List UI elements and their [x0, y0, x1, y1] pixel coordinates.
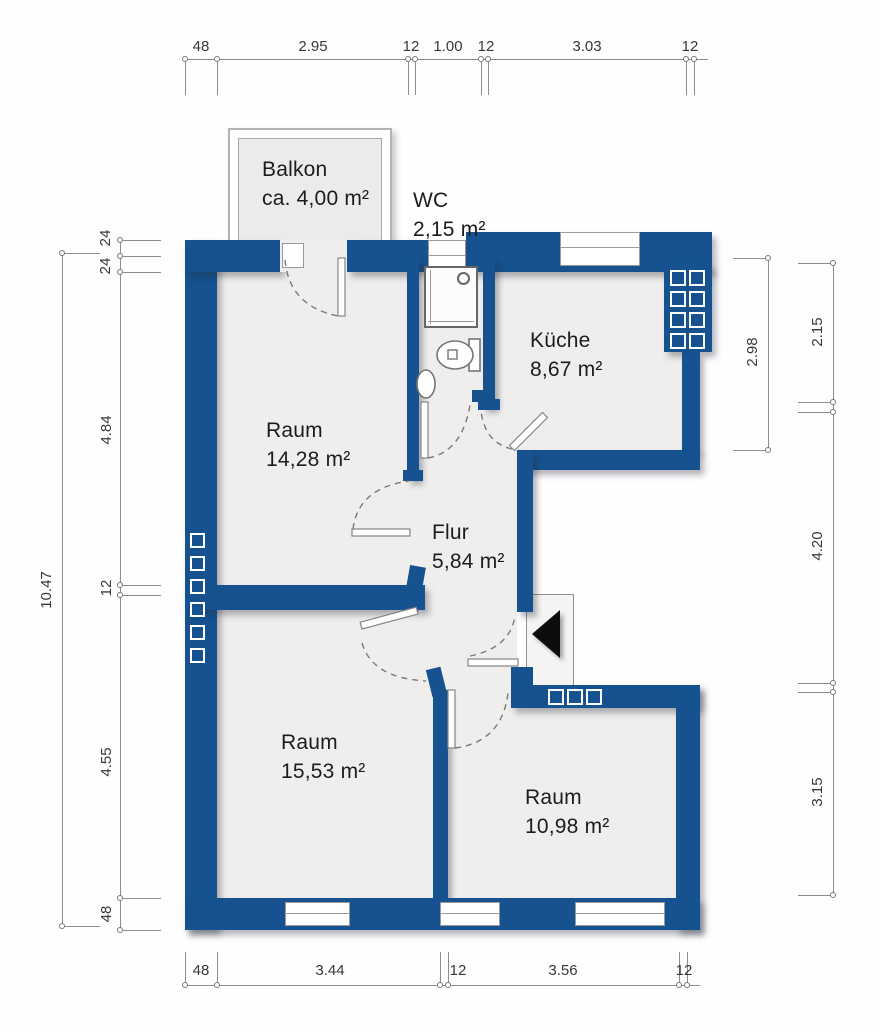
dim-witness — [733, 450, 768, 451]
dim-witness — [733, 258, 768, 259]
dim-label: 48 — [193, 38, 210, 55]
dim-tick — [412, 56, 418, 62]
dim-tick — [830, 260, 836, 266]
dim-witness — [123, 272, 161, 273]
chimney-square — [670, 291, 686, 307]
wall-top-a — [185, 240, 281, 272]
dim-line-right-inner — [768, 258, 769, 450]
wall-kitchen-west-cap — [478, 399, 500, 410]
shaft-square — [586, 689, 602, 705]
room-area: 15,53 m² — [281, 757, 365, 786]
dim-label: 4.20 — [810, 524, 826, 568]
dim-label: 4.84 — [99, 408, 115, 452]
label-flur: Flur 5,84 m² — [432, 518, 505, 576]
room-name: Flur — [432, 518, 505, 547]
dim-label: 3.03 — [572, 38, 601, 55]
dim-tick — [830, 689, 836, 695]
dim-label: 2.15 — [810, 310, 826, 354]
room-name: WC — [413, 186, 486, 215]
dim-witness — [415, 62, 416, 95]
dim-label: 12 — [682, 38, 699, 55]
dim-tick — [182, 982, 188, 988]
chimney-square — [670, 333, 686, 349]
dim-witness — [686, 62, 687, 95]
dim-label: 24 — [98, 244, 114, 288]
shaft-square — [190, 533, 205, 548]
wall-room1-east — [407, 258, 419, 480]
chimney-square — [689, 333, 705, 349]
chimney-square — [689, 312, 705, 328]
wall-kitchen-south — [517, 450, 700, 470]
room-area: ca. 4,00 m² — [262, 184, 369, 213]
dim-witness — [798, 895, 833, 896]
shaft-square — [190, 579, 205, 594]
dim-tick — [445, 982, 451, 988]
dim-tick — [117, 237, 123, 243]
dim-label: 3.15 — [810, 770, 826, 814]
dim-line-right-outer — [833, 263, 834, 895]
dim-witness — [488, 62, 489, 95]
dim-label: 3.56 — [548, 962, 577, 979]
dim-witness — [798, 402, 833, 403]
dim-witness — [694, 62, 695, 95]
dim-witness — [65, 253, 100, 254]
dim-witness — [440, 952, 441, 985]
dim-tick — [214, 56, 220, 62]
chimney-square — [670, 312, 686, 328]
dim-tick — [830, 680, 836, 686]
dim-tick — [117, 927, 123, 933]
dim-witness — [798, 412, 833, 413]
dim-line-top — [185, 59, 708, 60]
dim-tick — [117, 592, 123, 598]
wall-entrance-stub — [511, 667, 533, 687]
dim-witness — [123, 585, 161, 586]
dim-witness — [123, 898, 161, 899]
room-name: Raum — [525, 783, 609, 812]
label-kueche: Küche 8,67 m² — [530, 326, 603, 384]
room-area: 2,15 m² — [413, 215, 486, 244]
dim-label: 10.47 — [39, 568, 55, 612]
floor-plan: Balkon ca. 4,00 m² WC 2,15 m² Küche 8,67… — [0, 0, 881, 1030]
dim-tick — [684, 982, 690, 988]
dim-tick — [59, 923, 65, 929]
dim-tick — [683, 56, 689, 62]
dim-witness — [185, 62, 186, 95]
dim-tick — [182, 56, 188, 62]
dim-label: 12 — [450, 962, 467, 979]
entrance-landing — [526, 594, 574, 686]
label-wc: WC 2,15 m² — [413, 186, 486, 244]
dim-tick — [765, 447, 771, 453]
dim-witness — [481, 62, 482, 95]
shower-icon — [424, 266, 478, 328]
dim-label: 3.44 — [315, 962, 344, 979]
room-name: Küche — [530, 326, 603, 355]
dim-tick — [117, 895, 123, 901]
wall-room1-east-cap — [403, 470, 423, 481]
dim-tick — [437, 982, 443, 988]
room-name: Raum — [266, 416, 350, 445]
wall-kitchen-east — [682, 352, 700, 452]
dim-witness — [798, 263, 833, 264]
wall-kitchen-west — [483, 258, 495, 408]
label-balkon: Balkon ca. 4,00 m² — [262, 155, 369, 213]
shaft-square — [190, 602, 205, 617]
room-name: Raum — [281, 728, 365, 757]
dim-witness — [217, 952, 218, 985]
dim-label: 12 — [99, 566, 115, 610]
shaft-square — [190, 625, 205, 640]
dim-tick — [691, 56, 697, 62]
wall-room2-east — [433, 690, 448, 898]
dim-witness — [217, 62, 218, 95]
dim-witness — [123, 930, 161, 931]
balcony-door-opening — [280, 240, 347, 272]
dim-tick — [117, 253, 123, 259]
dim-witness — [798, 692, 833, 693]
dim-tick — [676, 982, 682, 988]
shaft-square — [548, 689, 564, 705]
room-area: 14,28 m² — [266, 445, 350, 474]
dim-tick — [117, 582, 123, 588]
dim-label: 12 — [403, 38, 420, 55]
kitchen-window — [560, 232, 640, 266]
room-area: 5,84 m² — [432, 547, 505, 576]
dim-tick — [59, 250, 65, 256]
chimney-square — [670, 270, 686, 286]
dim-label: 12 — [478, 38, 495, 55]
dim-tick — [214, 982, 220, 988]
dim-tick — [478, 56, 484, 62]
window-south-2 — [440, 902, 500, 926]
room-area: 8,67 m² — [530, 355, 603, 384]
chimney-square — [689, 270, 705, 286]
dim-label: 12 — [676, 962, 693, 979]
dim-witness — [123, 256, 161, 257]
dim-line-left-outer — [62, 253, 63, 926]
dim-tick — [117, 269, 123, 275]
label-raum2: Raum 15,53 m² — [281, 728, 365, 786]
label-raum3: Raum 10,98 m² — [525, 783, 609, 841]
label-raum1: Raum 14,28 m² — [266, 416, 350, 474]
dim-label: 4.55 — [99, 740, 115, 784]
dim-label: 1.00 — [433, 38, 462, 55]
window-south-3 — [575, 902, 665, 926]
dim-tick — [765, 255, 771, 261]
wall-entrance-west — [517, 450, 533, 612]
dim-witness — [123, 240, 161, 241]
dim-tick — [485, 56, 491, 62]
dim-label: 2.95 — [298, 38, 327, 55]
dim-witness — [798, 683, 833, 684]
dim-witness — [123, 595, 161, 596]
dim-tick — [830, 399, 836, 405]
room-area: 10,98 m² — [525, 812, 609, 841]
chimney-square — [689, 291, 705, 307]
dim-witness — [65, 926, 100, 927]
shaft-square — [567, 689, 583, 705]
wall-room3-east — [676, 685, 700, 930]
dim-witness — [408, 62, 409, 95]
shaft-square — [190, 648, 205, 663]
room-name: Balkon — [262, 155, 369, 184]
dim-tick — [830, 892, 836, 898]
dim-label: 48 — [193, 962, 210, 979]
dim-label: 48 — [99, 892, 115, 936]
dim-witness — [185, 952, 186, 985]
dim-label: 2.98 — [745, 330, 761, 374]
wall-room3-north — [511, 685, 700, 708]
dim-tick — [405, 56, 411, 62]
window-south-1 — [285, 902, 350, 926]
dim-tick — [830, 409, 836, 415]
shower-drain-icon — [457, 272, 470, 285]
wall-middle — [185, 585, 425, 610]
shaft-square — [190, 556, 205, 571]
